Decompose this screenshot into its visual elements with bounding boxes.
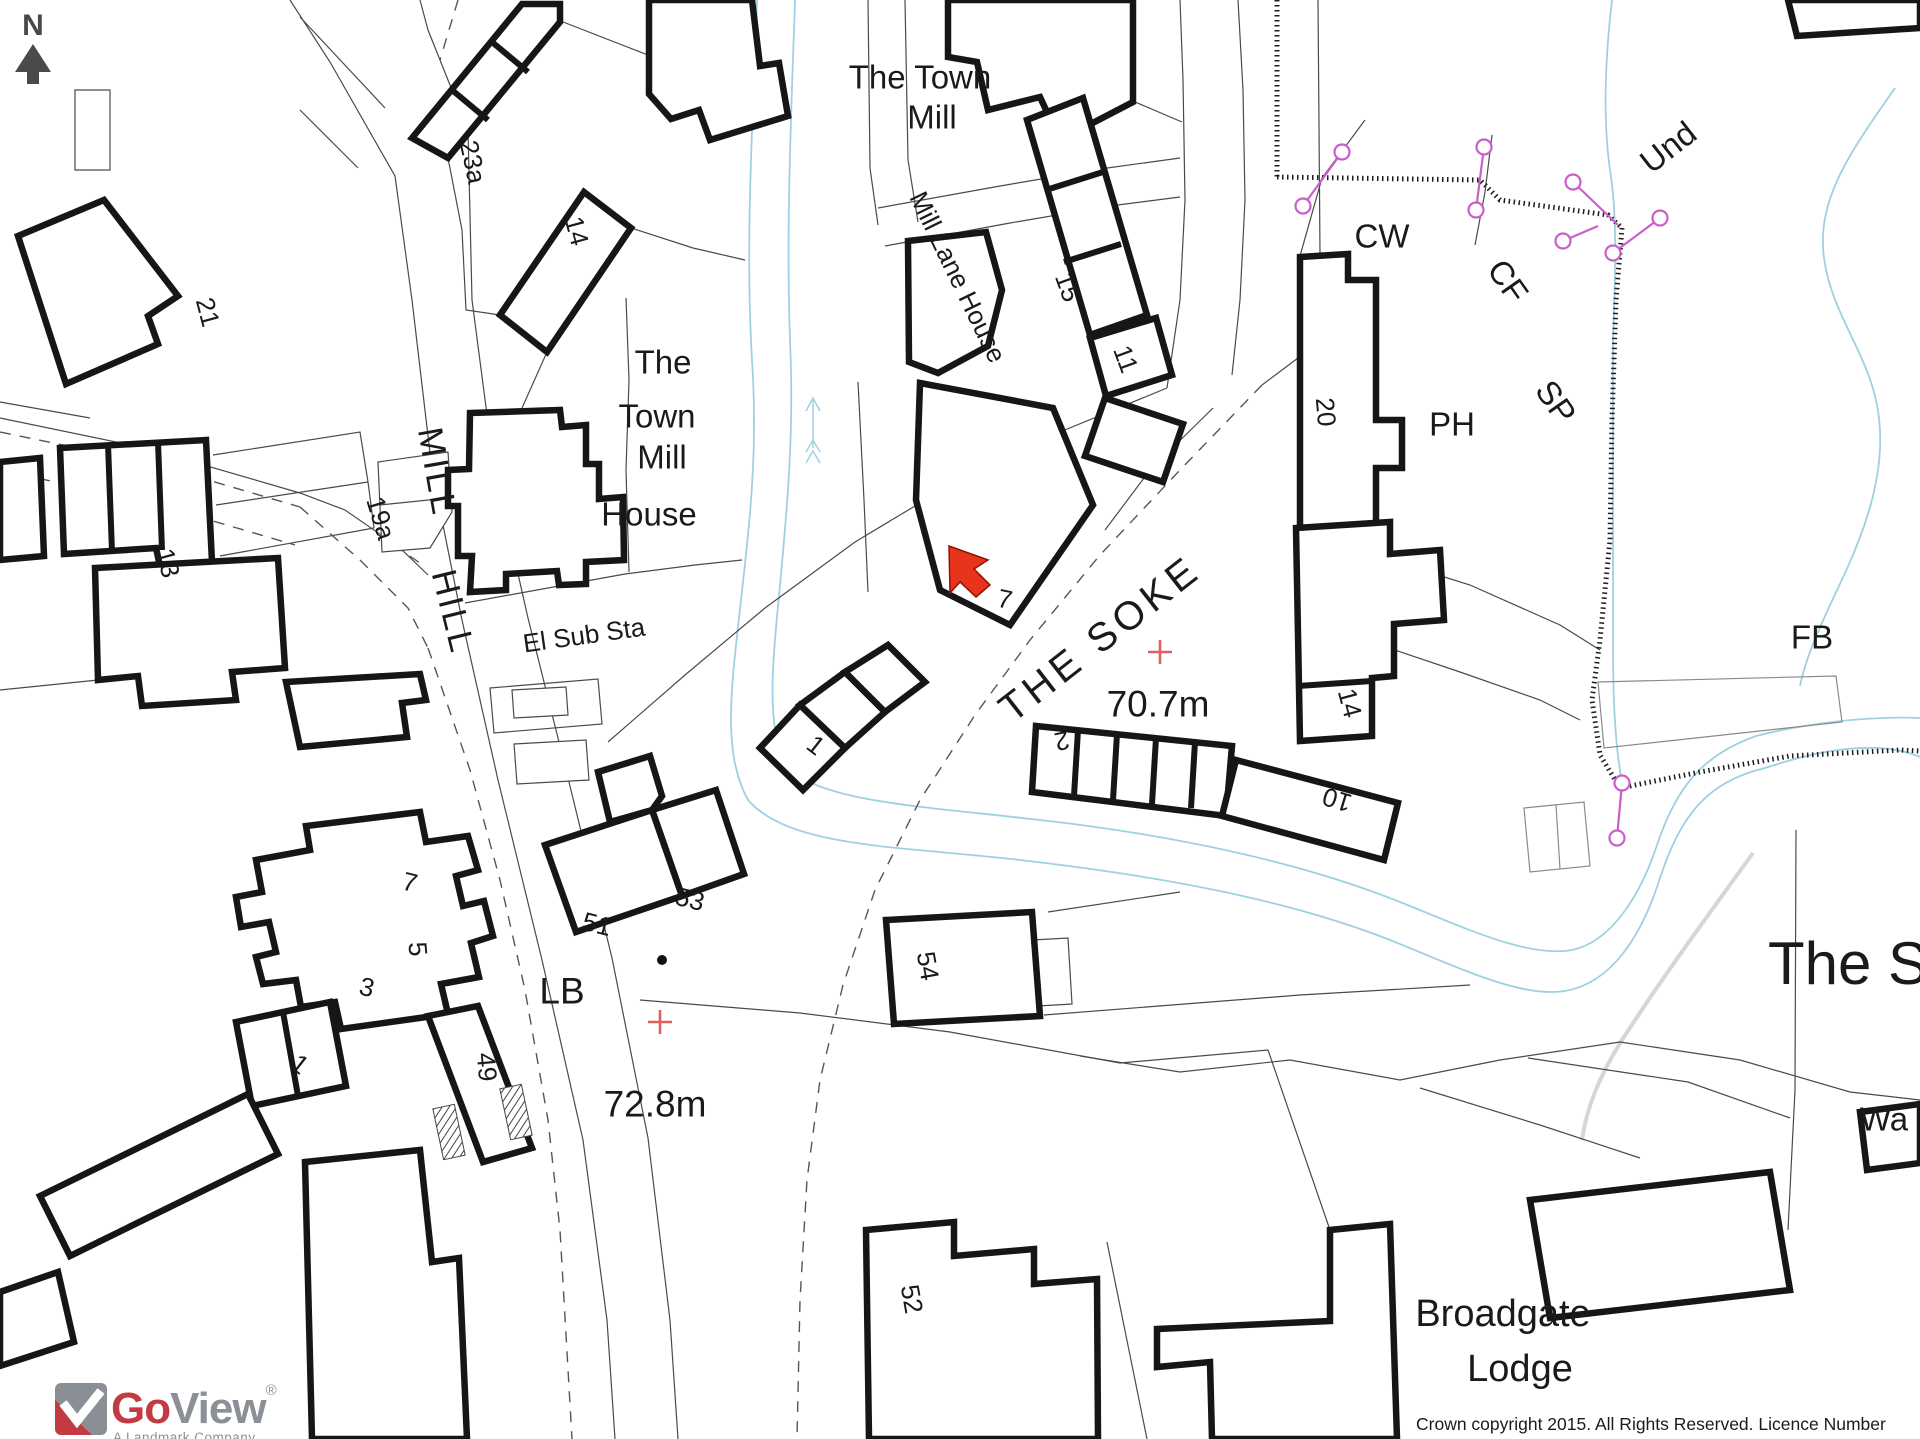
copyright-notice: Crown copyright 2015. All Rights Reserve… [1402, 1408, 1920, 1439]
goview-logo: GoView® A Landmark Company [55, 1380, 315, 1439]
logo-registered-mark: ® [266, 1382, 276, 1399]
buildings [0, 0, 1920, 1439]
logo-brand-view: View [170, 1384, 265, 1433]
logo-brand-go: Go [111, 1384, 170, 1433]
north-arrow-icon [15, 44, 51, 84]
map-canvas: The TownMillMill Lane House23a14211511CW… [0, 0, 1920, 1439]
map-graphics [0, 0, 1920, 1439]
survey-dot [657, 955, 667, 965]
goview-logo-text: GoView® [111, 1382, 276, 1434]
stream-flow-arrow-icon [806, 398, 820, 463]
logo-tagline: A Landmark Company [113, 1430, 256, 1439]
